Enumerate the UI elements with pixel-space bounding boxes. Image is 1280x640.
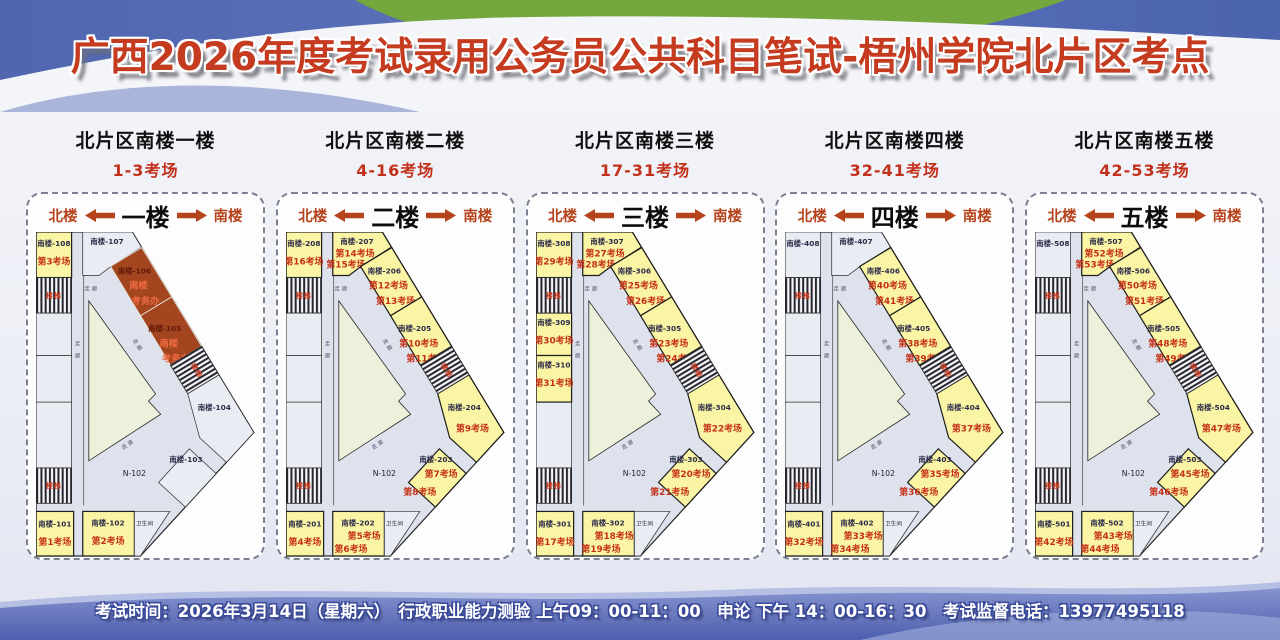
exam-room-label: 第43考场 (1094, 530, 1133, 542)
exam-room-label: 第3考场 (37, 255, 70, 267)
open-area-label: N-102 (373, 469, 396, 478)
room-lc (536, 402, 571, 468)
exam-room-label: 第16考场 (286, 255, 324, 267)
floor-nav: 北楼二楼南楼 (278, 201, 513, 230)
exam-room-label: 第38考场 (899, 337, 938, 349)
room-number-label: 南楼-508 (1036, 239, 1069, 248)
section-title: 北片区南楼一楼 (26, 126, 265, 153)
exam-room-label: 第27考场 (585, 247, 624, 259)
page-title: 广西2026年度考试录用公务员公共科目笔试-梧州学院北片区考点 (0, 26, 1280, 82)
nav-north-label: 北楼 (548, 205, 577, 226)
room-number-label: 南楼-202 (341, 519, 374, 528)
corridor-label: 廊 (75, 352, 81, 360)
exam-room-label: 第48考场 (1148, 337, 1187, 349)
exam-room-label: 第25考场 (618, 280, 657, 292)
room-number-label: 南楼-105 (148, 324, 181, 333)
stairs-label: 楼梯 (545, 291, 561, 300)
toilet-label: 卫生间 (136, 520, 153, 528)
room-number-label: 南楼-403 (919, 455, 952, 464)
exam-room-label: 第1考场 (38, 536, 71, 548)
floor-section-1: 北片区南楼一楼1-3考场北楼一楼南楼南楼-108第3考场南楼-107南楼-106… (26, 120, 265, 560)
room-number-label: 南楼-507 (1089, 237, 1122, 246)
exam-room-label: 第29考场 (536, 255, 574, 267)
exam-room-label: 第15考场 (326, 258, 365, 270)
exam-room-label: 第8考场 (403, 486, 436, 498)
room-number-label: 南楼-302 (591, 519, 624, 528)
room-number-label: 南楼-407 (840, 237, 873, 246)
floor-section-5: 北片区南楼五楼42-53考场北楼五楼南楼南楼-508南楼-507第52考场第53… (1025, 120, 1264, 560)
stairs-label: 楼梯 (46, 481, 62, 490)
exam-room-label: 第30考场 (536, 334, 574, 346)
room-number-label: 南楼-208 (287, 239, 320, 248)
room-number-label: 南楼-204 (447, 403, 480, 412)
exam-room-label: 第5考场 (347, 530, 380, 542)
nav-floor-label: 三楼 (621, 198, 669, 233)
room-南楼-501 (1035, 511, 1072, 556)
nav-south-label: 南楼 (1213, 205, 1242, 226)
arrow-right-icon (926, 209, 956, 222)
room-number-label: 南楼-401 (788, 520, 821, 529)
exam-room-label: 第9考场 (456, 422, 489, 434)
stairs-label: 楼梯 (46, 291, 62, 300)
exam-room-label: 第4考场 (288, 536, 321, 548)
room-la (286, 313, 321, 356)
floor-nav: 北楼五楼南楼 (1027, 201, 1262, 230)
corridor-label: 走廊 (584, 285, 599, 293)
exam-room-label: 第7考场 (424, 468, 457, 480)
exam-room-label: 第19考场 (581, 543, 620, 555)
room-number-label: 南楼-502 (1090, 519, 1123, 528)
stairs-label: 楼梯 (795, 481, 811, 490)
room-lb (785, 356, 820, 403)
exam-room-label: 第31考场 (536, 377, 574, 389)
room-number-label: 南楼-304 (697, 403, 730, 412)
arrow-right-icon (676, 209, 706, 222)
stairs-label: 楼梯 (795, 291, 811, 300)
room-number-label: 南楼-306 (617, 267, 650, 276)
exam-room-label: 第47考场 (1202, 422, 1241, 434)
corridor-label: 走 (75, 340, 81, 347)
room-la (1035, 313, 1070, 356)
room-number-label: 南楼-301 (538, 520, 571, 529)
section-room-range: 1-3考场 (26, 157, 265, 181)
room-number-label: 南楼-108 (37, 239, 70, 248)
stairs-label: 楼梯 (296, 481, 312, 490)
exam-room-label: 第12考场 (369, 280, 408, 292)
nav-north-label: 北楼 (798, 205, 827, 226)
stairs-label: 楼梯 (1045, 291, 1061, 300)
arrow-left-icon (85, 209, 115, 222)
corridor-label: 走 (1074, 340, 1080, 347)
exam-room-label: 第23考场 (649, 337, 688, 349)
room-number-label: 南楼-406 (867, 267, 900, 276)
corridor-label: 廊 (325, 352, 331, 360)
room-number-label: 南楼-505 (1147, 324, 1180, 333)
corridor-label: 廊 (824, 352, 830, 360)
room-number-label: 南楼-205 (398, 324, 431, 333)
floor-plan-panel: 北楼三楼南楼南楼-309第30考场南楼-310第31考场南楼-308第29考场南… (526, 192, 765, 560)
exam-room-label: 第40考场 (868, 280, 907, 292)
room-number-label: 南楼-408 (787, 239, 820, 248)
exam-room-label: 第44考场 (1080, 543, 1119, 555)
nav-floor-label: 四楼 (871, 198, 919, 233)
section-room-range: 17-31考场 (526, 157, 765, 181)
corridor-label: 走 (325, 340, 331, 347)
room-number-label: 南楼-504 (1197, 403, 1230, 412)
corridor-label: 走廊 (1083, 285, 1098, 293)
exam-room-label: 第18考场 (594, 530, 633, 542)
exam-room-label: 第34考场 (831, 543, 870, 555)
nav-floor-label: 二楼 (371, 198, 419, 233)
exam-room-label: 第37考场 (952, 422, 991, 434)
corridor-label: 走 (574, 340, 580, 347)
room-number-label: 南楼-308 (537, 239, 570, 248)
office-label: 南楼 (159, 337, 178, 349)
room-number-label: 南楼-106 (118, 267, 151, 276)
nav-south-label: 南楼 (963, 205, 992, 226)
room-lc (36, 402, 71, 468)
exam-room-label: 第10考场 (399, 337, 438, 349)
toilet-label: 卫生间 (885, 520, 902, 528)
room-number-label: 南楼-206 (368, 267, 401, 276)
stairs-label: 楼梯 (1045, 481, 1061, 490)
toilet-label: 卫生间 (636, 520, 653, 528)
room-南楼-101 (36, 511, 73, 556)
exam-room-label: 第14考场 (335, 247, 374, 259)
nav-south-label: 南楼 (214, 205, 243, 226)
floor-nav: 北楼四楼南楼 (777, 201, 1012, 230)
floor-plan-map: 南楼-309第30考场南楼-310第31考场南楼-308第29考场南楼-307第… (536, 232, 755, 558)
exam-room-label: 第35考场 (921, 468, 960, 480)
toilet-room (134, 511, 169, 556)
toilet-room (884, 511, 919, 556)
floor-plan-map: 南楼-108第3考场南楼-107南楼-106南楼考务办南楼-105南楼考务办南楼… (36, 232, 255, 558)
room-number-label: 南楼-207 (340, 237, 373, 246)
exam-room-label: 第6考场 (334, 543, 367, 555)
room-number-label: 南楼-303 (669, 455, 702, 464)
office-label: 南楼 (129, 280, 148, 292)
room-number-label: 南楼-501 (1037, 520, 1070, 529)
section-room-range: 4-16考场 (276, 157, 515, 181)
room-number-label: 南楼-506 (1117, 267, 1150, 276)
stairs-label: 楼梯 (545, 481, 561, 490)
floor-section-3: 北片区南楼三楼17-31考场北楼三楼南楼南楼-309第30考场南楼-310第31… (526, 120, 765, 560)
corridor-label: 走廊 (834, 285, 849, 293)
room-number-label: 南楼-503 (1168, 455, 1201, 464)
section-title: 北片区南楼三楼 (526, 126, 765, 153)
section-title: 北片区南楼五楼 (1025, 126, 1264, 153)
exam-schedule-text: 考试时间：2026年3月14日（星期六） 行政职业能力测验 上午09：00-11… (0, 598, 1280, 622)
arrow-right-icon (1176, 209, 1206, 222)
toilet-room (384, 511, 419, 556)
toilet-room (634, 511, 669, 556)
arrow-right-icon (177, 209, 207, 222)
floor-plan-panel: 北楼一楼南楼南楼-108第3考场南楼-107南楼-106南楼考务办南楼-105南… (26, 192, 265, 560)
floor-plan-panel: 北楼五楼南楼南楼-508南楼-507第52考场第53考场南楼-506第50考场第… (1025, 192, 1264, 560)
room-lb (36, 356, 71, 403)
arrow-left-icon (1084, 209, 1114, 222)
floor-section-4: 北片区南楼四楼32-41考场北楼四楼南楼南楼-408南楼-407南楼-406第4… (775, 120, 1014, 560)
exam-room-label: 第53考场 (1075, 258, 1114, 270)
room-number-label: 南楼-305 (648, 324, 681, 333)
exam-room-label: 第46考场 (1149, 486, 1188, 498)
nav-south-label: 南楼 (713, 205, 742, 226)
arrow-left-icon (584, 209, 614, 222)
section-room-range: 32-41考场 (775, 157, 1014, 181)
exam-room-label: 第20考场 (671, 468, 710, 480)
nav-floor-label: 五楼 (1121, 198, 1169, 233)
floor-nav: 北楼三楼南楼 (528, 201, 763, 230)
nav-north-label: 北楼 (298, 205, 327, 226)
floor-plan-map: 南楼-408南楼-407南楼-406第40考场第41考场南楼-405第38考场第… (785, 232, 1004, 558)
office-label: 考务办 (132, 295, 161, 307)
floor-plan-map: 南楼-208第16考场南楼-207第14考场第15考场南楼-206第12考场第1… (286, 232, 505, 558)
exam-room-label: 第17考场 (536, 536, 575, 548)
room-lb (1035, 356, 1070, 403)
exam-room-label: 第21考场 (650, 486, 689, 498)
corridor-label: 走 (824, 340, 830, 347)
corridor-label: 走廊 (84, 285, 99, 293)
room-number-label: 南楼-102 (91, 519, 124, 528)
room-lb (286, 356, 321, 403)
room-number-label: 南楼-101 (38, 520, 71, 529)
floor-panels-row: 北片区南楼一楼1-3考场北楼一楼南楼南楼-108第3考场南楼-107南楼-106… (0, 120, 1280, 560)
exam-room-label: 第36考场 (900, 486, 939, 498)
nav-north-label: 北楼 (1048, 205, 1077, 226)
room-number-label: 南楼-405 (897, 324, 930, 333)
room-number-label: 南楼-104 (198, 403, 231, 412)
exam-room-label: 第50考场 (1118, 280, 1157, 292)
floor-plan-panel: 北楼二楼南楼南楼-208第16考场南楼-207第14考场第15考场南楼-206第… (276, 192, 515, 560)
exam-room-label: 第42考场 (1035, 536, 1074, 548)
open-area-label: N-102 (872, 469, 895, 478)
open-area-label: N-102 (1122, 469, 1145, 478)
floor-section-2: 北片区南楼二楼4-16考场北楼二楼南楼南楼-208第16考场南楼-207第14考… (276, 120, 515, 560)
room-lc (286, 402, 321, 468)
room-南楼-301 (536, 511, 573, 556)
nav-north-label: 北楼 (49, 205, 78, 226)
room-number-label: 南楼-404 (947, 403, 980, 412)
exam-room-label: 第52考场 (1084, 247, 1123, 259)
room-number-label: 南楼-402 (841, 519, 874, 528)
room-number-label: 南楼-307 (590, 237, 623, 246)
room-number-label: 南楼-103 (169, 455, 202, 464)
corridor-label: 走廊 (334, 285, 349, 293)
room-lc (785, 402, 820, 468)
room-number-label: 南楼-107 (90, 237, 123, 246)
exam-room-label: 第28考场 (576, 258, 615, 270)
open-area-label: N-102 (123, 469, 146, 478)
nav-south-label: 南楼 (463, 205, 492, 226)
room-number-label: 南楼-310 (537, 361, 570, 370)
room-number-label: 南楼-201 (288, 520, 321, 529)
room-南楼-401 (785, 511, 822, 556)
exam-room-label: 第22考场 (702, 422, 741, 434)
exam-room-label: 第32考场 (785, 536, 824, 548)
arrow-left-icon (834, 209, 864, 222)
room-lc (1035, 402, 1070, 468)
corridor-label: 廊 (574, 352, 580, 360)
corridor-label: 廊 (1074, 352, 1080, 360)
section-title: 北片区南楼四楼 (775, 126, 1014, 153)
floor-plan-panel: 北楼四楼南楼南楼-408南楼-407南楼-406第40考场第41考场南楼-405… (775, 192, 1014, 560)
room-number-label: 南楼-309 (537, 318, 570, 327)
open-area-label: N-102 (622, 469, 645, 478)
room-南楼-201 (286, 511, 323, 556)
floor-nav: 北楼一楼南楼 (28, 201, 263, 230)
exam-room-label: 第2考场 (92, 535, 125, 547)
arrow-left-icon (334, 209, 364, 222)
toilet-label: 卫生间 (1135, 520, 1152, 528)
floor-plan-map: 南楼-508南楼-507第52考场第53考场南楼-506第50考场第51考场南楼… (1035, 232, 1254, 558)
exam-room-label: 第33考场 (844, 530, 883, 542)
room-la (785, 313, 820, 356)
section-title: 北片区南楼二楼 (276, 126, 515, 153)
arrow-right-icon (426, 209, 456, 222)
toilet-label: 卫生间 (386, 520, 403, 528)
section-room-range: 42-53考场 (1025, 157, 1264, 181)
stairs-label: 楼梯 (296, 291, 312, 300)
room-la (36, 313, 71, 356)
room-number-label: 南楼-203 (419, 455, 452, 464)
exam-room-label: 第45考场 (1171, 468, 1210, 480)
toilet-room (1133, 511, 1168, 556)
nav-floor-label: 一楼 (122, 198, 170, 233)
